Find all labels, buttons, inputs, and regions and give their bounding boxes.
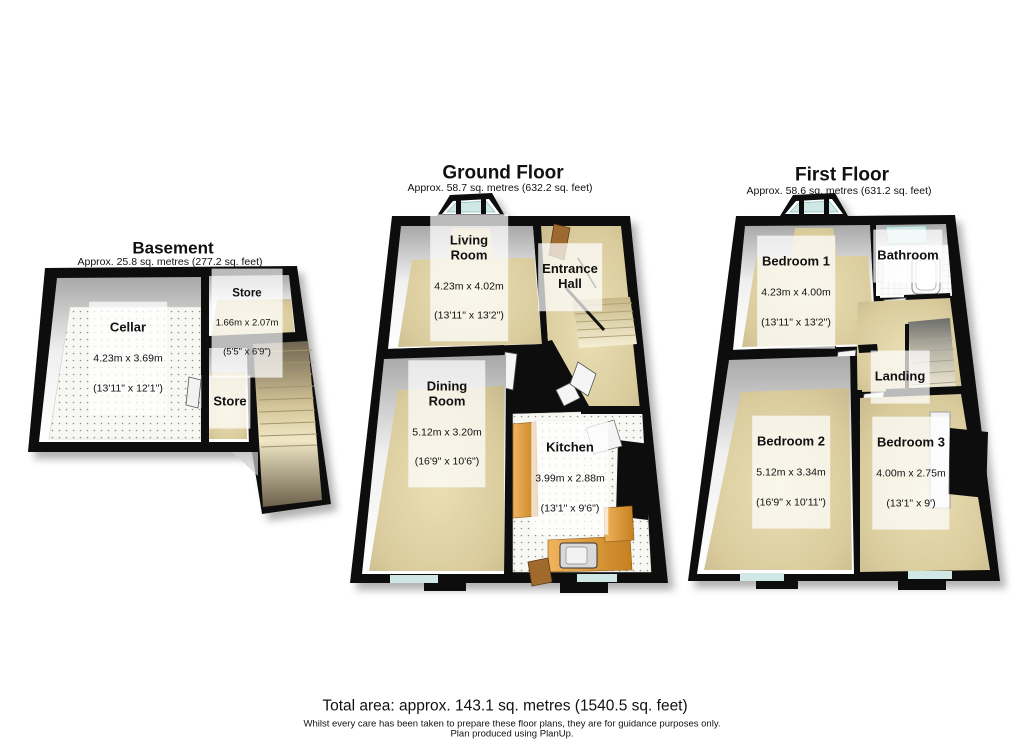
dining-room-name: Dining Room [412,379,481,408]
first-floor-title: First Floor [795,164,889,185]
bay-post-right-first [824,196,829,215]
store-lower-name: Store [213,395,246,410]
cellar-divider-wall-upper [201,270,209,375]
dining-room-dims-ft: (16'9" x 10'6") [412,457,481,469]
kitchen-dims-m: 3.99m x 2.88m [535,473,604,485]
bedroom1-dims-ft: (13'11" x 13'2") [761,317,831,329]
total-area-text: Total area: approx. 143.1 sq. metres (15… [322,697,687,715]
bedroom2-label: Bedroom 2 5.12m x 3.34m (16'9" x 10'11") [752,416,830,529]
cellar-divider-wall-lower [201,408,209,446]
bedroom3-top-wall-left [857,390,862,398]
bedroom3-dims-m: 4.00m x 2.75m [876,468,945,480]
first-wall-stub-right [898,581,946,590]
kitchen-sink-basin [566,547,587,564]
ground-wall-stub-left [424,583,466,591]
kitchen-dims-ft: (13'1" x 9'6") [535,503,604,515]
landing-label: Landing [871,351,930,404]
basement-shadow [232,452,258,476]
bedroom3-name: Bedroom 3 [876,436,945,451]
basement-area: Approx. 25.8 sq. metres (277.2 sq. feet) [77,257,262,269]
bedroom2-window [740,573,784,581]
bedroom2-dims-m: 5.12m x 3.34m [756,467,826,479]
store-upper-label: Store 1.66m x 2.07m (5'5" x 6'9") [212,269,283,378]
first-floor-area: Approx. 58.6 sq. metres (631.2 sq. feet) [746,186,931,198]
store-upper-dims-ft: (5'5" x 6'9") [216,348,279,359]
bathroom-name: Bathroom [877,249,938,264]
basement-plan [28,266,331,514]
floorplan-page: { "basement": { "title": "Basement", "ar… [0,0,1024,745]
back-door [528,558,552,586]
bedroom3-chimney [948,428,988,498]
cellar-label: Cellar 4.23m x 3.69m (13'11" x 12'1") [89,302,167,415]
living-dining-wall-right [524,344,545,353]
cellar-dims-m: 4.23m x 3.69m [93,353,163,365]
bedroom1-name: Bedroom 1 [761,255,831,270]
living-room-dims-ft: (13'11" x 13'2") [434,311,504,323]
dining-room-label: Dining Room 5.12m x 3.20m (16'9" x 10'6"… [408,360,485,487]
kitchen-label: Kitchen 3.99m x 2.88m (13'1" x 9'6") [531,422,608,535]
dining-room-dims-m: 5.12m x 3.20m [412,427,481,439]
store-upper-name: Store [216,288,279,301]
bedroom1-label: Bedroom 1 4.23m x 4.00m (13'11" x 13'2") [757,236,835,349]
entrance-hall-label: Entrance Hall [538,243,602,311]
ground-floor-plan [350,193,668,593]
bedroom1-dims-m: 4.23m x 4.00m [761,287,831,299]
ground-wall-stub-right [560,583,608,593]
kitchen-name: Kitchen [535,441,604,456]
bay-post-left-first [799,198,804,217]
bay-window-post-right [481,196,486,215]
landing-name: Landing [875,370,926,385]
kitchen-window [577,574,617,582]
basement-title: Basement [132,238,213,257]
produced-by-text: Plan produced using PlanUp. [450,730,573,741]
cellar-door-leaf [186,377,201,408]
living-room-name: Living Room [434,233,504,262]
bedroom3-window [908,571,952,579]
cellar-dims-ft: (13'11" x 12'1") [93,383,163,395]
living-room-label: Living Room 4.23m x 4.02m (13'11" x 13'2… [430,214,508,341]
bathroom-label: Bathroom [873,230,942,283]
store-lower-label: Store [209,376,250,429]
first-wall-stub-left [756,581,798,589]
ground-floor-area: Approx. 58.7 sq. metres (632.2 sq. feet) [407,183,592,195]
cellar-name: Cellar [93,321,163,336]
first-floor-plan [688,193,1000,590]
living-room-dims-m: 4.23m x 4.02m [434,281,504,293]
bedroom2-name: Bedroom 2 [756,435,826,450]
bedroom3-label: Bedroom 3 4.00m x 2.75m (13'1" x 9') [872,417,949,530]
store-upper-dims-m: 1.66m x 2.07m [216,319,279,330]
bedroom2-dims-ft: (16'9" x 10'11") [756,497,826,509]
bedroom3-dims-ft: (13'1" x 9') [876,498,945,510]
entrance-hall-name: Entrance Hall [542,262,598,291]
dining-window [390,575,438,583]
kitchen-top-wall [581,406,643,414]
ground-floor-title: Ground Floor [442,162,563,183]
